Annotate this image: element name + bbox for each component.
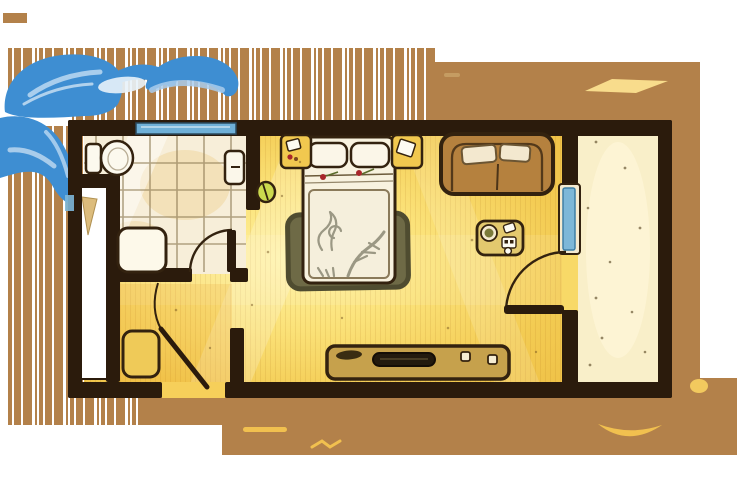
swoosh-white-gap <box>0 106 72 126</box>
brown-mat-top <box>435 62 700 425</box>
brown-mat-bottom <box>222 425 737 455</box>
brown-mat-corner <box>700 378 737 425</box>
illustration-canvas <box>0 0 740 480</box>
brown-corner-patch <box>3 13 27 23</box>
